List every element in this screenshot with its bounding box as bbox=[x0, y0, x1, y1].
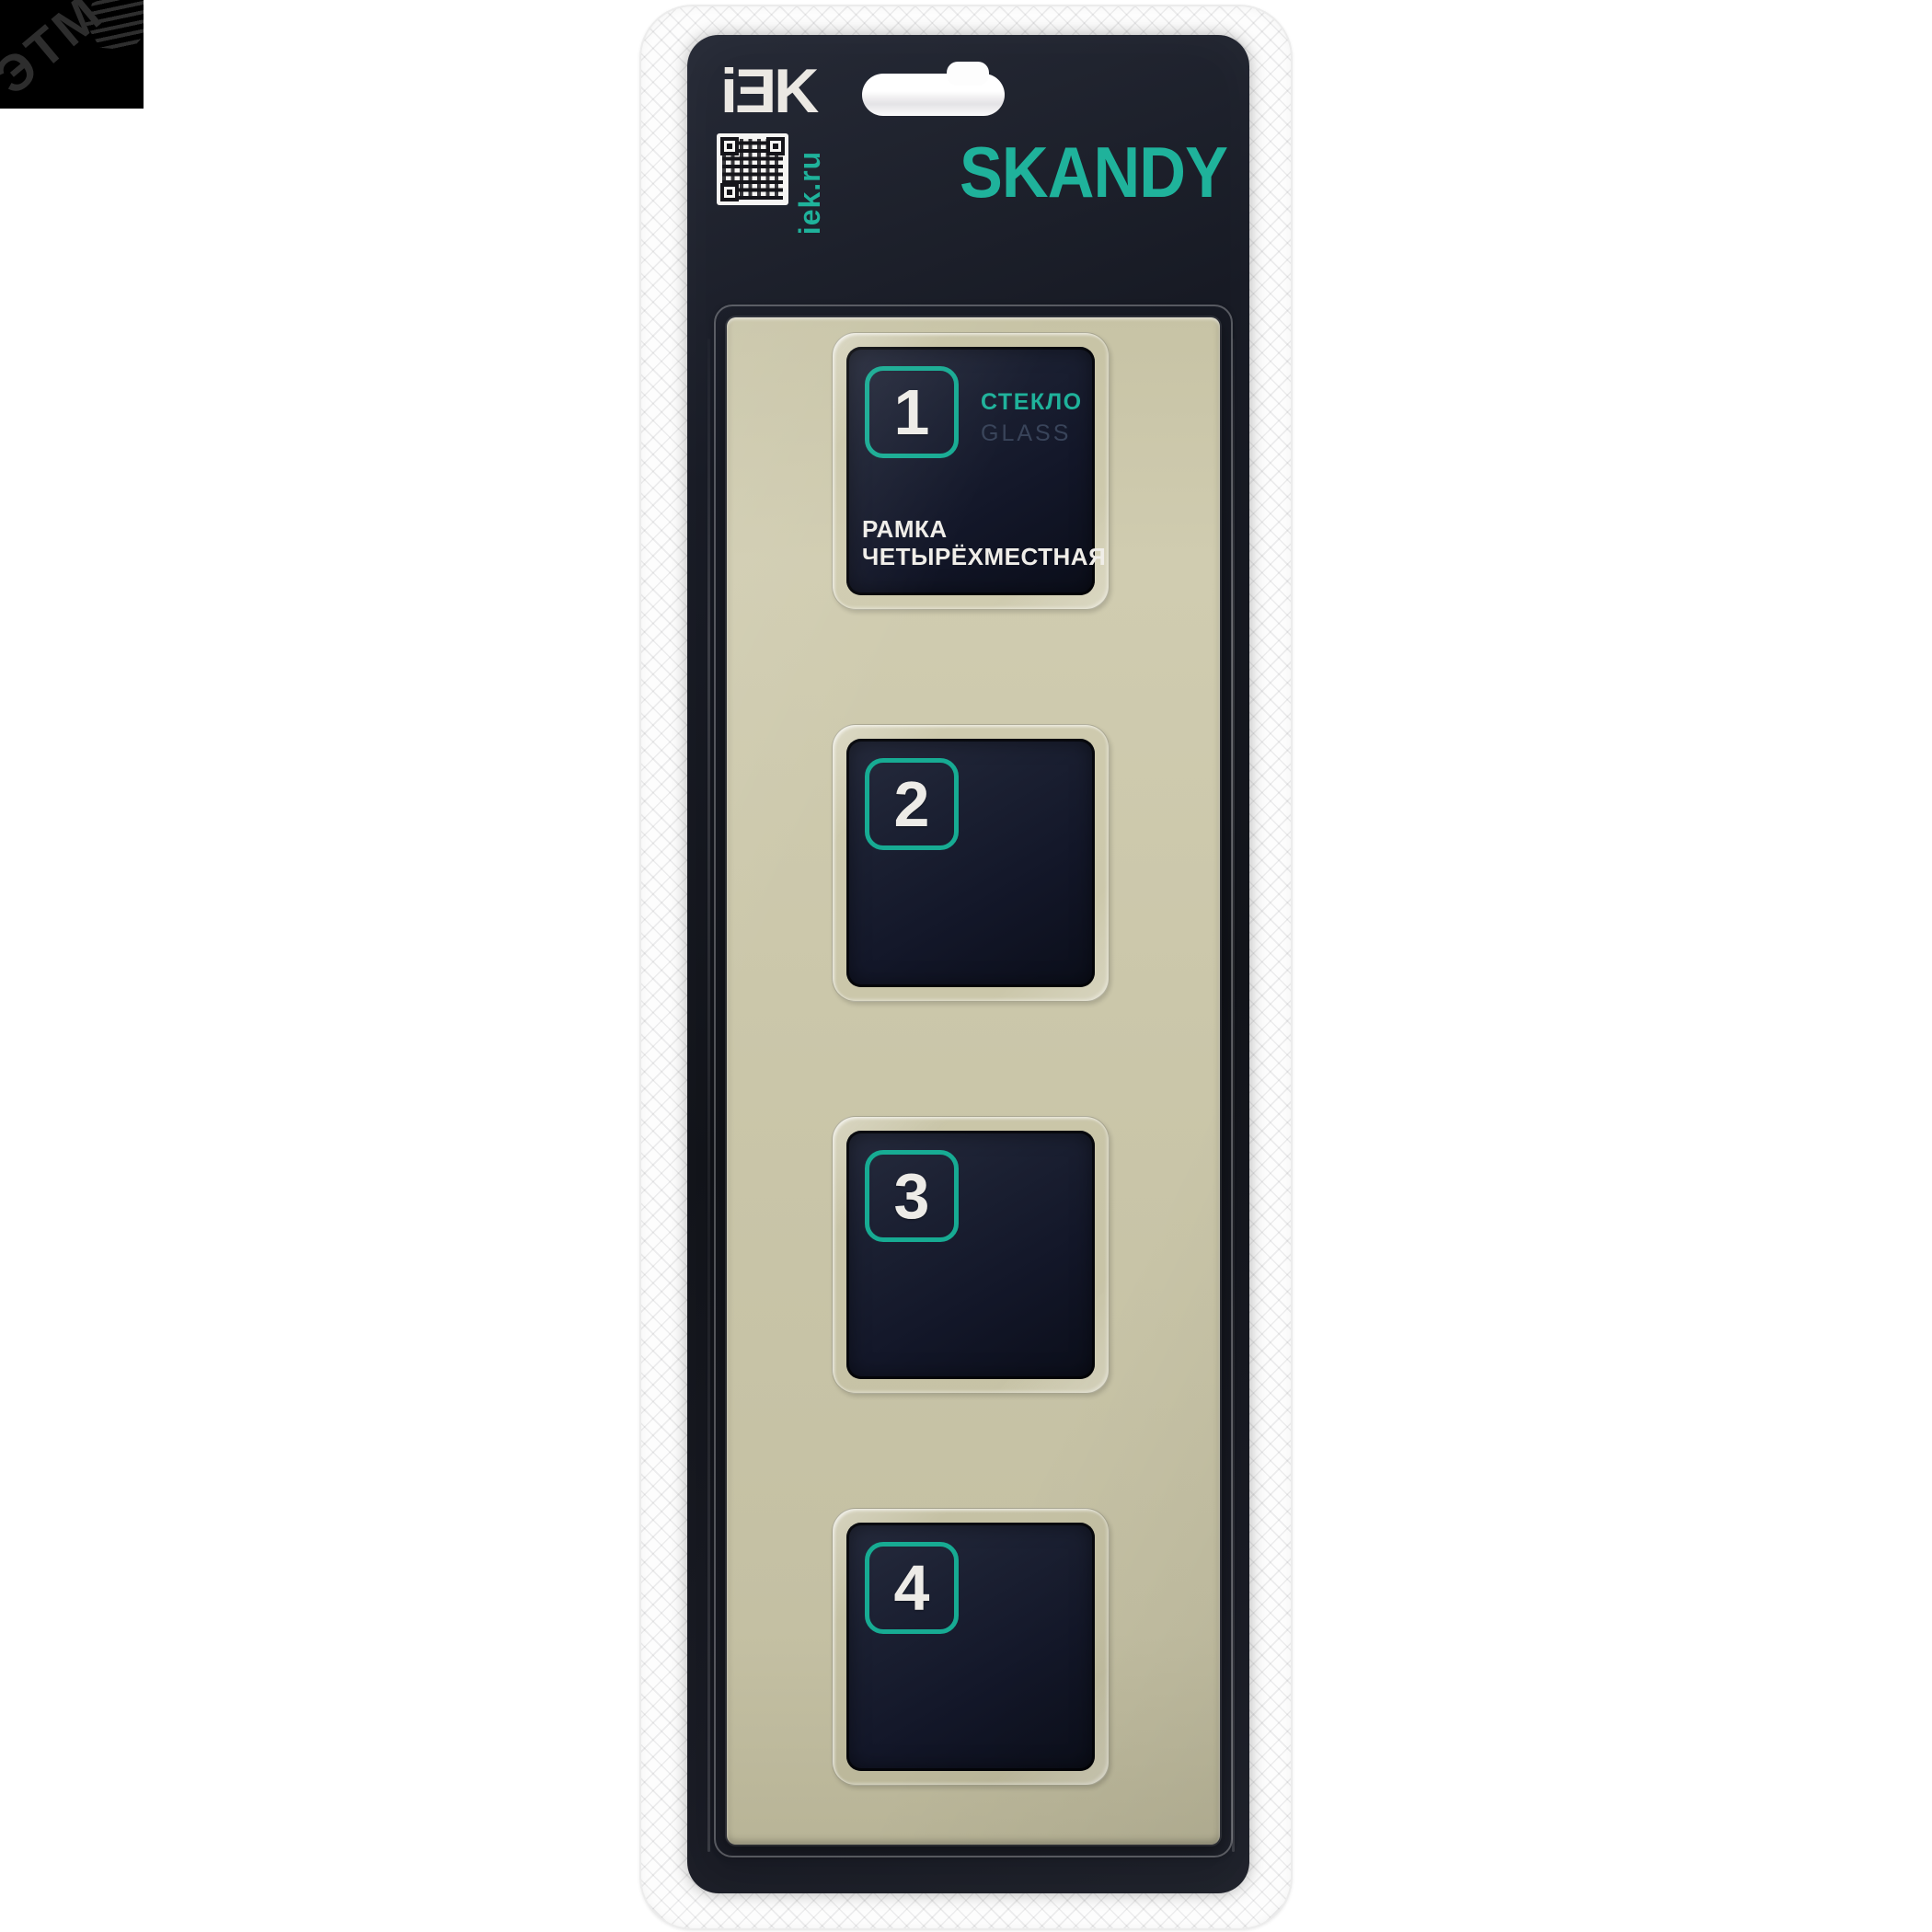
window-opening: 4 bbox=[846, 1523, 1095, 1771]
qr-code bbox=[717, 133, 788, 205]
window-opening: 2 bbox=[846, 739, 1095, 987]
blister-seam-right bbox=[1232, 339, 1235, 1852]
blister-seam-left bbox=[707, 339, 710, 1852]
etm-watermark: ЭТМ bbox=[0, 0, 144, 109]
window-opening: 3 bbox=[846, 1131, 1095, 1379]
material-label-en: GLASS bbox=[981, 420, 1071, 447]
number-badge: 4 bbox=[865, 1542, 959, 1634]
number-badge: 2 bbox=[865, 758, 959, 850]
backing-card: iƎK iek.ru SKANDY 1 СТЕКЛО GLASS bbox=[687, 35, 1249, 1893]
hang-hole bbox=[862, 74, 1005, 116]
frame-window-3: 3 bbox=[846, 1131, 1095, 1379]
frame-window-4: 4 bbox=[846, 1523, 1095, 1771]
glass-frame: 1 СТЕКЛО GLASS РАМКА ЧЕТЫРЁХМЕСТНАЯ 2 bbox=[727, 317, 1220, 1845]
qr-finder-icon bbox=[720, 183, 739, 201]
window-opening: 1 СТЕКЛО GLASS РАМКА ЧЕТЫРЁХМЕСТНАЯ bbox=[846, 347, 1095, 595]
site-url-vertical: iek.ru bbox=[790, 131, 831, 254]
blister-pack: iƎK iek.ru SKANDY 1 СТЕКЛО GLASS bbox=[639, 5, 1293, 1930]
product-name: РАМКА ЧЕТЫРЁХМЕСТНАЯ bbox=[862, 515, 1106, 570]
number-badge: 1 bbox=[865, 366, 959, 458]
material-label-ru: СТЕКЛО bbox=[981, 389, 1083, 416]
frame-window-2: 2 bbox=[846, 739, 1095, 987]
number-badge: 3 bbox=[865, 1150, 959, 1242]
qr-finder-icon bbox=[766, 137, 785, 155]
iek-logo: iƎK bbox=[720, 55, 816, 127]
site-url-text: iek.ru bbox=[794, 150, 828, 234]
product-name-line1: РАМКА bbox=[862, 515, 1106, 543]
qr-finder-icon bbox=[720, 137, 739, 155]
etm-watermark-text: ЭТМ bbox=[0, 0, 115, 106]
frame-window-1: 1 СТЕКЛО GLASS РАМКА ЧЕТЫРЁХМЕСТНАЯ bbox=[846, 347, 1095, 595]
series-title: SKANDY bbox=[960, 131, 1227, 214]
product-name-line2: ЧЕТЫРЁХМЕСТНАЯ bbox=[862, 543, 1106, 570]
